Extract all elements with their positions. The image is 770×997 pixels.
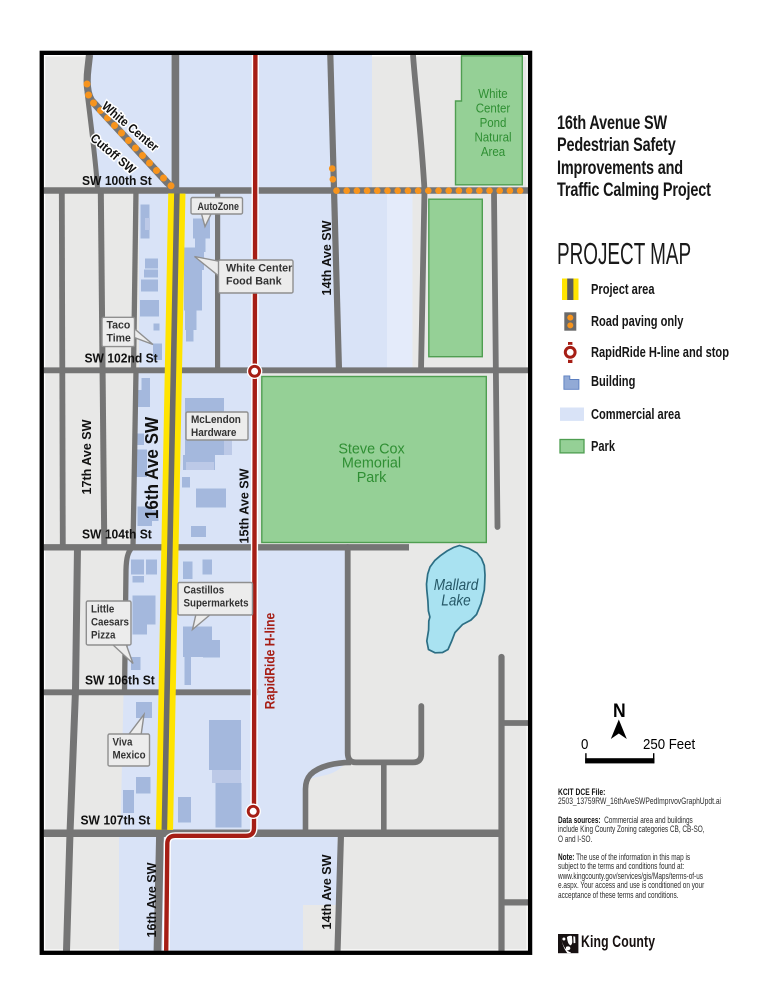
svg-text:Time: Time xyxy=(107,332,131,344)
svg-text:15th Ave SW: 15th Ave SW xyxy=(236,468,251,544)
svg-text:Park: Park xyxy=(357,470,387,486)
svg-text:McLendon: McLendon xyxy=(191,413,241,426)
svg-text:AutoZone: AutoZone xyxy=(198,201,240,213)
svg-text:Pond: Pond xyxy=(480,115,507,130)
svg-text:SW 107th St: SW 107th St xyxy=(81,813,152,827)
svg-text:RapidRide H-line: RapidRide H-line xyxy=(262,613,278,709)
svg-text:Mexico: Mexico xyxy=(113,750,146,762)
svg-text:SW 102nd St: SW 102nd St xyxy=(85,351,159,365)
svg-text:Lake: Lake xyxy=(441,593,470,610)
svg-text:Taco: Taco xyxy=(107,319,131,331)
svg-text:14th Ave SW: 14th Ave SW xyxy=(319,220,334,296)
svg-text:17th Ave SW: 17th Ave SW xyxy=(79,419,94,495)
svg-text:Little: Little xyxy=(91,604,114,616)
svg-text:SW 100th St: SW 100th St xyxy=(82,174,153,188)
svg-text:Castillos: Castillos xyxy=(184,585,225,597)
svg-text:Hardware: Hardware xyxy=(191,427,237,440)
svg-text:Area: Area xyxy=(481,144,506,159)
svg-text:Mallard: Mallard xyxy=(434,577,479,594)
svg-text:Center: Center xyxy=(476,101,511,116)
svg-text:Supermarkets: Supermarkets xyxy=(184,598,249,610)
svg-text:White: White xyxy=(478,86,508,101)
svg-text:White Center: White Center xyxy=(226,262,293,274)
svg-text:Natural: Natural xyxy=(474,130,511,145)
svg-text:SW 104th St: SW 104th St xyxy=(82,527,153,541)
svg-text:Caesars: Caesars xyxy=(91,617,129,629)
svg-text:SW 106th St: SW 106th St xyxy=(85,673,156,687)
svg-text:Viva: Viva xyxy=(113,737,133,749)
svg-text:Food Bank: Food Bank xyxy=(226,275,282,287)
svg-text:Pizza: Pizza xyxy=(91,630,116,642)
svg-text:16th Ave SW: 16th Ave SW xyxy=(144,862,159,938)
svg-text:16th Ave SW: 16th Ave SW xyxy=(141,417,162,519)
svg-text:14th Ave SW: 14th Ave SW xyxy=(319,854,334,930)
